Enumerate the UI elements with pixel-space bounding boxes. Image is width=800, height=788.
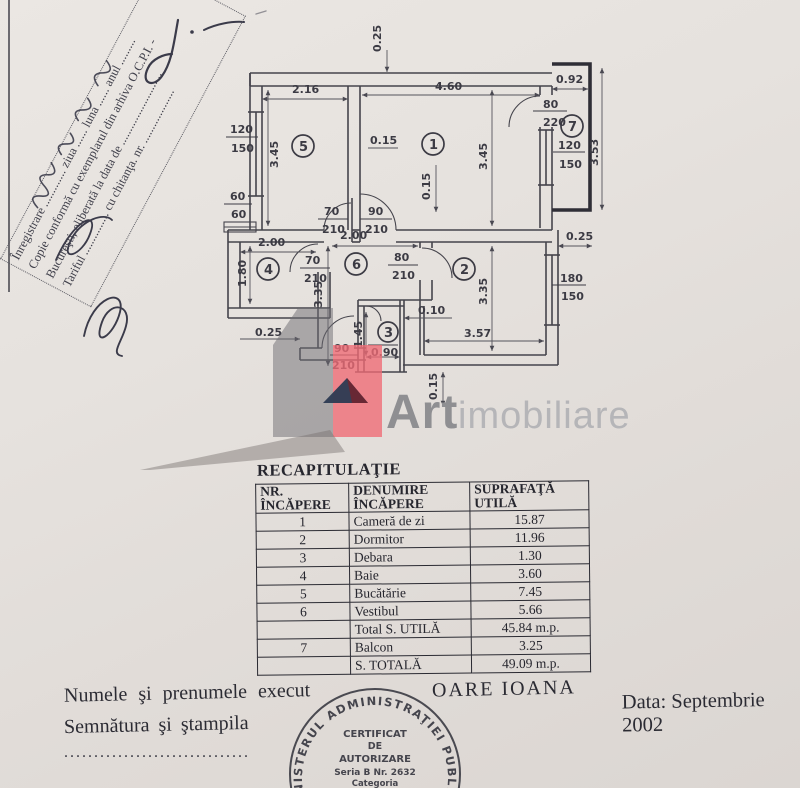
col-header-nr: NR. ÎNCĂPERE bbox=[256, 483, 349, 513]
col-header-suprafata: SUPRAFAŢĂ UTILĂ bbox=[470, 481, 589, 512]
logo-word-imobiliare: imobiliare bbox=[458, 395, 631, 438]
stamp-line-certificat: CERTIFICAT bbox=[343, 729, 407, 740]
recap-section: RECAPITULAŢIE NR. ÎNCĂPERE DENUMIRE ÎNCĂ… bbox=[255, 457, 591, 676]
logo-gray-block bbox=[273, 308, 333, 437]
scanned-document-page: { "page": { "handwriting_top": "ju. -" }… bbox=[0, 0, 800, 788]
recap-table: NR. ÎNCĂPERE DENUMIRE ÎNCĂPERE SUPRAFAŢĂ… bbox=[255, 480, 591, 676]
stamp-line-categoria: Categoria bbox=[352, 779, 399, 788]
recap-title: RECAPITULAŢIE bbox=[257, 457, 589, 480]
logo-word-art: Art bbox=[386, 385, 458, 440]
signature-label: Semnătura şi ştampila bbox=[64, 712, 249, 739]
stamp-line-de: DE bbox=[368, 741, 382, 752]
round-stamp: MINISTERUL ADMINISTRAŢIEI PUBLICE CERTIF… bbox=[282, 680, 468, 788]
dotted-signature-line: ............................... bbox=[64, 744, 250, 762]
col-header-denumire: DENUMIRE ÎNCĂPERE bbox=[349, 482, 470, 513]
stamp-line-seria: Seria B Nr. 2632 bbox=[334, 768, 416, 778]
stamp-line-autorizare: AUTORIZARE bbox=[339, 754, 411, 765]
table-row-total: S. TOTALĂ 49.09 m.p. bbox=[257, 654, 590, 675]
date-label: Data: Septembrie 2002 bbox=[622, 688, 800, 737]
executant-label: Numele şi prenumele execut bbox=[64, 679, 311, 708]
recap-header-row: NR. ÎNCĂPERE DENUMIRE ÎNCĂPERE SUPRAFAŢĂ… bbox=[256, 481, 589, 514]
